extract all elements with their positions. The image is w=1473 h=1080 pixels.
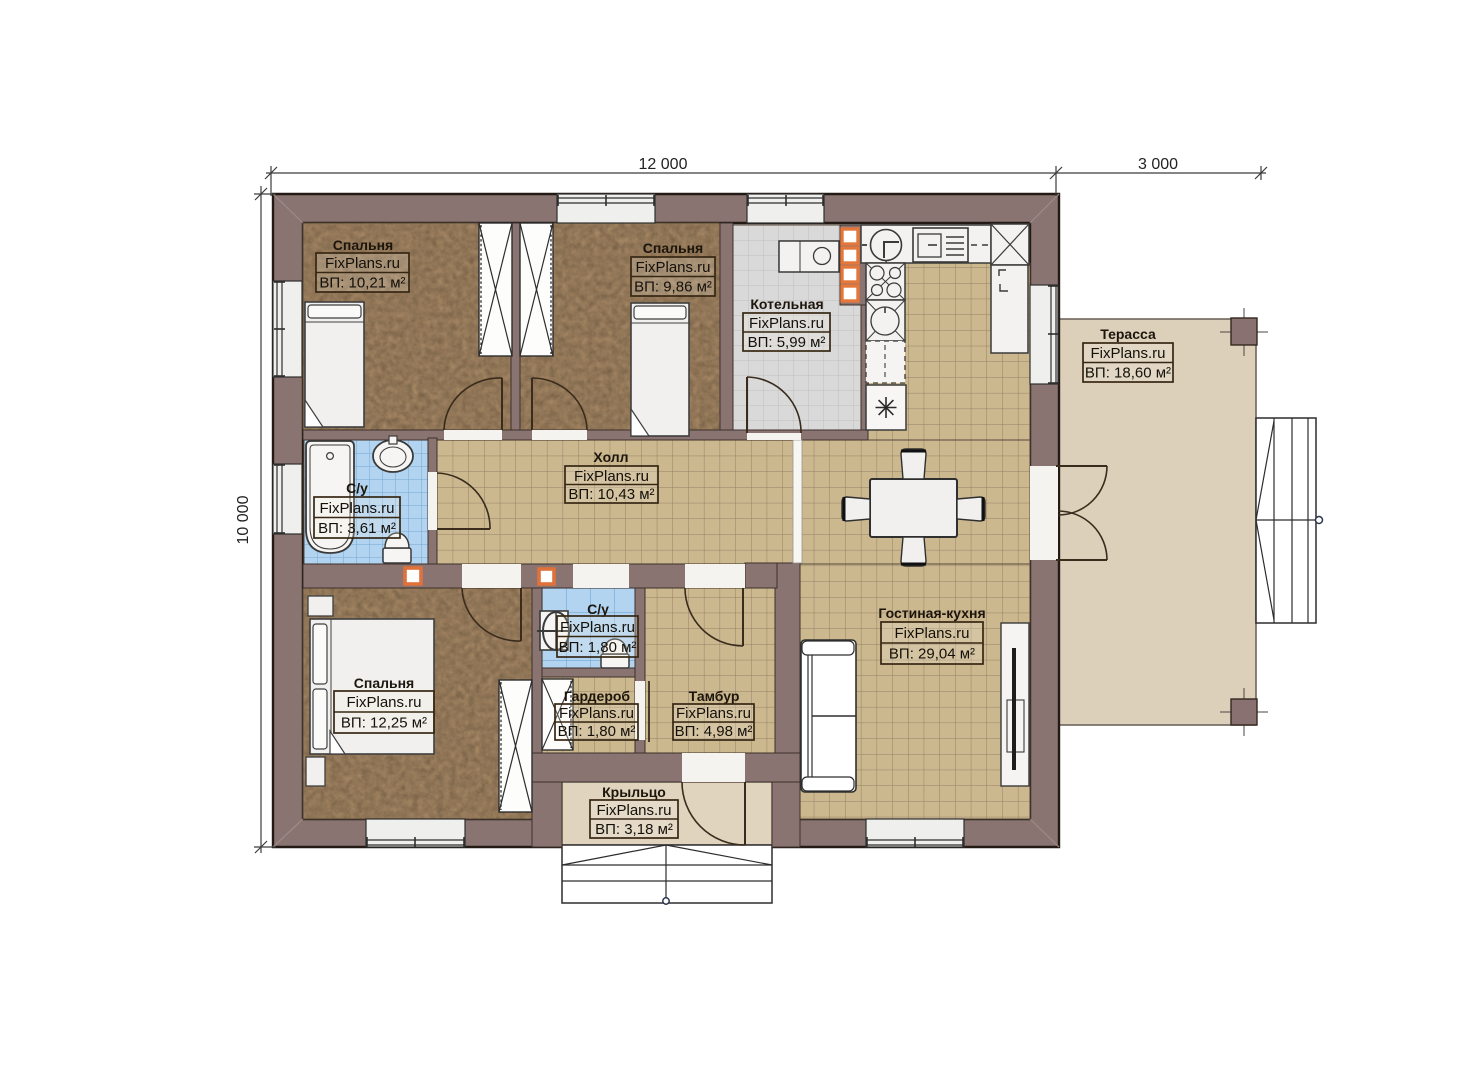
svg-text:FixPlans.ru: FixPlans.ru [749, 315, 824, 332]
svg-text:FixPlans.ru: FixPlans.ru [346, 694, 421, 711]
svg-text:ВП: 5,99 м²: ВП: 5,99 м² [748, 334, 826, 351]
svg-text:Крыльцо: Крыльцо [602, 784, 666, 800]
svg-text:С/у: С/у [587, 601, 609, 617]
svg-text:3 000: 3 000 [1138, 156, 1178, 173]
svg-text:Холл: Холл [593, 449, 628, 465]
svg-text:FixPlans.ru: FixPlans.ru [325, 255, 400, 272]
svg-text:Терасса: Терасса [1100, 326, 1156, 342]
svg-text:Гостиная-кухня: Гостиная-кухня [878, 605, 985, 621]
svg-text:12 000: 12 000 [639, 156, 688, 173]
svg-text:FixPlans.ru: FixPlans.ru [559, 705, 634, 722]
svg-text:FixPlans.ru: FixPlans.ru [894, 625, 969, 642]
svg-text:ВП: 12,25 м²: ВП: 12,25 м² [341, 715, 427, 732]
svg-text:ВП: 10,21 м²: ВП: 10,21 м² [319, 275, 405, 292]
svg-text:FixPlans.ru: FixPlans.ru [596, 802, 671, 819]
svg-text:ВП: 4,98 м²: ВП: 4,98 м² [675, 723, 753, 740]
svg-text:ВП: 18,60 м²: ВП: 18,60 м² [1085, 365, 1171, 382]
svg-text:10 000: 10 000 [235, 495, 252, 544]
svg-text:Спальня: Спальня [354, 675, 414, 691]
svg-text:FixPlans.ru: FixPlans.ru [560, 619, 635, 636]
svg-text:FixPlans.ru: FixPlans.ru [1090, 345, 1165, 362]
svg-text:FixPlans.ru: FixPlans.ru [319, 500, 394, 517]
svg-text:ВП: 1,80 м²: ВП: 1,80 м² [559, 639, 637, 656]
svg-text:ВП: 1,80 м²: ВП: 1,80 м² [558, 723, 636, 740]
svg-text:ВП: 29,04 м²: ВП: 29,04 м² [889, 646, 975, 663]
svg-text:FixPlans.ru: FixPlans.ru [574, 468, 649, 485]
svg-text:С/у: С/у [346, 480, 368, 496]
svg-text:Спальня: Спальня [333, 237, 393, 253]
svg-text:Котельная: Котельная [750, 296, 823, 312]
svg-text:Спальня: Спальня [643, 240, 703, 256]
svg-text:Тамбур: Тамбур [689, 688, 740, 704]
svg-text:ВП: 9,86 м²: ВП: 9,86 м² [634, 279, 712, 296]
svg-text:ВП: 3,18 м²: ВП: 3,18 м² [595, 821, 673, 838]
svg-text:FixPlans.ru: FixPlans.ru [676, 705, 751, 722]
svg-text:ВП: 10,43 м²: ВП: 10,43 м² [568, 486, 654, 503]
svg-text:Гардероб: Гардероб [564, 688, 631, 704]
svg-text:ВП: 3,61 м²: ВП: 3,61 м² [318, 520, 396, 537]
svg-text:FixPlans.ru: FixPlans.ru [635, 259, 710, 276]
